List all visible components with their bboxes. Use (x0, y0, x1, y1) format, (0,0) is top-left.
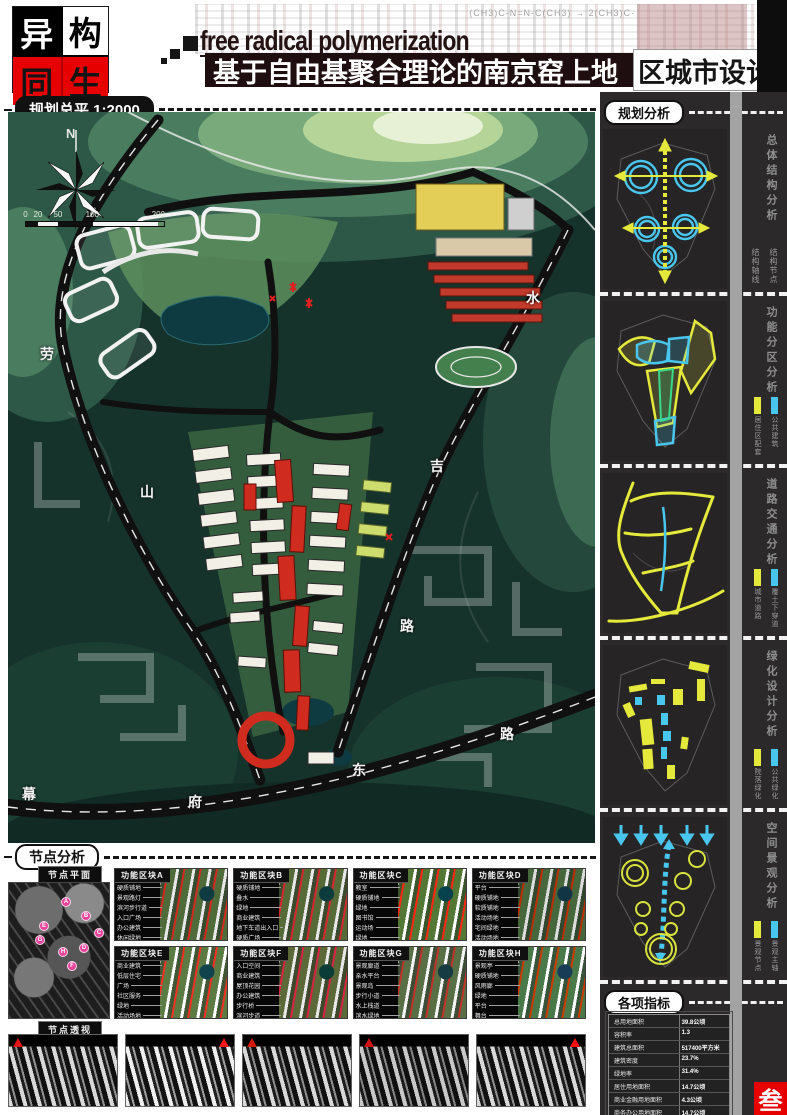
legend-label: 景观节点 (752, 940, 762, 972)
node-plan-map: ABCDEFGH (8, 882, 110, 1019)
indicator-value: 14.7公顷 (679, 1106, 729, 1115)
indicator-value: 23.7% (679, 1054, 729, 1066)
section-legend: 景观节点 景观主轴 (752, 921, 779, 972)
block-thumb (160, 869, 227, 940)
indicator-row: 容积率 1.3 (609, 1028, 729, 1041)
indicator-row: 商务办公用地面积 14.7公顷 (609, 1106, 729, 1115)
block-item: 平台 (475, 1001, 520, 1010)
block-item: 滨水绿地 (356, 1011, 401, 1019)
block-item: 硬质铺地 (117, 883, 162, 892)
block-item: 绿地 (117, 1001, 162, 1010)
north-label: N (66, 126, 75, 141)
legend-swatch-cyan (771, 569, 778, 586)
legend-label: 公共建筑 (769, 416, 779, 448)
street-label: 山 (140, 482, 154, 502)
street-label: 路 (500, 724, 514, 744)
node-plan-tab: 节点平面 (38, 866, 102, 883)
indicator-label: 绿地率 (609, 1067, 679, 1079)
block-item: 绿地 (236, 903, 281, 912)
section-legend: 居住区配套 公共建筑 (752, 397, 779, 456)
analysis-section-landscape: 空间景观分析 景观节点 景观主轴 (600, 812, 787, 984)
block-item: 图书馆 (356, 913, 401, 922)
faded-chemical-formula: (CH3)C-N=N-C(CH3) → 2(CH3)C· (469, 8, 635, 18)
block-item: 水上栈道 (356, 1001, 401, 1010)
function-block-panel: 功能区块F 入口空间商业建筑屋顶花园办公建筑步行桥滨河步道滨河广场 (233, 946, 347, 1019)
street-label: 路 (400, 616, 414, 636)
function-block-panel: 功能区块C 教室硬质铺地绿地图书馆运动场绿地 (353, 868, 467, 941)
block-item: 景观岛 (356, 981, 401, 990)
perspective-image (359, 1034, 469, 1107)
section-label: 绿化设计分析 (763, 650, 779, 740)
node-marker: A (61, 897, 71, 907)
legend-label: 居住区配套 (752, 416, 762, 456)
indicator-value: 1.3 (679, 1028, 729, 1040)
indicator-row: 总用地面积 39.8公顷 (609, 1015, 729, 1028)
scale-tick: 20 (33, 210, 42, 219)
block-item: 广场 (117, 981, 162, 990)
block-item: 教室 (356, 883, 401, 892)
section-legend: 城市道路 覆土下穿道 (752, 569, 779, 628)
function-block-panel: 功能区块D 平台硬质铺地软质铺地活动场地宅间绿地活动场地住宅 (472, 868, 586, 941)
legend-swatch-yellow (754, 921, 761, 938)
legend-label: 结构节点 (768, 248, 779, 284)
block-item: 屋顶花园 (236, 981, 281, 990)
block-thumb (160, 947, 227, 1018)
function-block-panel: 功能区块H 景观亭硬质铺地风雨廊绿地平台舞台 (472, 946, 586, 1019)
block-item: 商业建筑 (236, 913, 281, 922)
block-item: 滨河步行道 (117, 903, 162, 912)
logo-cell: 构 (61, 7, 109, 57)
scale-tick: 100 (86, 210, 99, 219)
title-chinese-main: 基于自由基聚合理论的南京窑上地 (205, 51, 618, 90)
block-item: 商业建筑 (117, 961, 162, 970)
indicator-row: 绿地率 31.4% (609, 1067, 729, 1080)
node-marker: B (81, 911, 91, 921)
street-label: 府 (188, 792, 202, 812)
indicator-value: 4.3公顷 (679, 1093, 729, 1105)
street-label: 幕 (22, 784, 36, 804)
section-legend: 结构轴线 结构节点 (750, 248, 779, 284)
greening-diagram (603, 645, 727, 805)
block-item: 绿地 (475, 991, 520, 1000)
block-item: 办公建筑 (117, 923, 162, 932)
indicator-label: 总用地面积 (609, 1015, 679, 1027)
analysis-section-roads: 道路交通分析 城市道路 覆土下穿道 (600, 468, 787, 640)
legend-label: 城市道路 (752, 588, 762, 620)
landscape-diagram (603, 817, 727, 977)
block-title: 功能区块D (473, 869, 528, 883)
function-block-panel: 功能区块B 硬质铺地叠水绿地商业建筑地下车道出入口硬质广场 (233, 868, 347, 941)
block-item: 步行桥 (236, 1001, 281, 1010)
section-legend: 院落绿化 公共绿化 (752, 749, 779, 800)
vertical-gray-stripe (730, 92, 742, 1115)
scale-tick: 50 (53, 210, 62, 219)
block-item: 软质铺地 (475, 903, 520, 912)
block-item: 绿地 (356, 903, 401, 912)
street-label: 劳 (40, 344, 54, 364)
block-item: 平台 (475, 883, 520, 892)
block-title: 功能区块C (354, 869, 409, 883)
legend-swatch-cyan (771, 749, 778, 766)
scale-bar: 02050100200 (25, 210, 175, 232)
node-marker: G (35, 935, 45, 945)
function-block-panel: 功能区块A 硬质铺地景观路灯滨河步行道入口广场办公建筑休闲绿地屋顶花园 (114, 868, 228, 941)
block-item: 风雨廊 (475, 981, 520, 990)
street-label: 吉 (430, 456, 444, 476)
node-marker: E (39, 921, 49, 931)
indicators-table: 总用地面积 39.8公顷 容积率 1.3 建筑总面积 517400平方米 建筑密… (608, 1014, 730, 1115)
section-label: 空间景观分析 (763, 822, 779, 912)
block-title: 功能区块B (234, 869, 289, 883)
node-marker: H (58, 947, 68, 957)
block-item: 运动场 (356, 923, 401, 932)
block-title: 功能区块A (115, 869, 170, 883)
block-item: 滨河步道 (236, 1011, 281, 1019)
block-item: 绿地 (356, 933, 401, 941)
block-thumb (518, 869, 585, 940)
indicator-label: 建筑密度 (609, 1054, 679, 1066)
indicator-value: 31.4% (679, 1067, 729, 1079)
block-item: 叠水 (236, 893, 281, 902)
legend-swatch-yellow (754, 397, 761, 414)
block-item: 活动场地 (475, 913, 520, 922)
indicator-row: 建筑总面积 517400平方米 (609, 1041, 729, 1054)
function-blocks-grid: 功能区块A 硬质铺地景观路灯滨河步行道入口广场办公建筑休闲绿地屋顶花园 功能区块… (114, 868, 586, 1019)
indicators-header-row: 各项指标 (604, 990, 783, 1015)
scale-tick: 200 (152, 210, 165, 219)
scale-tick: 0 (23, 210, 27, 219)
block-item: 商业建筑 (236, 971, 281, 980)
block-item: 入口广场 (117, 913, 162, 922)
indicators-header: 各项指标 (604, 990, 684, 1015)
node-marker: D (79, 943, 89, 953)
perspective-image (242, 1034, 352, 1107)
legend-swatch-yellow (754, 749, 761, 766)
block-item: 硬质铺地 (236, 883, 281, 892)
block-title: 功能区块H (473, 947, 528, 961)
block-item: 步行小道 (356, 991, 401, 1000)
indicator-label: 容积率 (609, 1028, 679, 1040)
block-item: 地下车道出入口 (236, 923, 281, 932)
analysis-header: 规划分析 (604, 100, 684, 125)
master-plan-map: N 02050100200 劳山水吉路东路幕府 (8, 112, 595, 843)
block-item: 硬质铺地 (475, 893, 520, 902)
indicator-label: 商务办公用地面积 (609, 1106, 679, 1115)
function-block-panel: 功能区块G 景观廊道亲水平台景观岛步行小道水上栈道滨水绿地公共建筑 (353, 946, 467, 1019)
block-item: 舞台 (475, 1011, 520, 1019)
collage-red-block (637, 4, 747, 54)
roads-diagram (603, 473, 727, 633)
block-item: 硬质广场 (236, 933, 281, 941)
section-label: 功能分区分析 (763, 306, 779, 396)
legend-swatch-cyan (771, 921, 778, 938)
block-item: 景观亭 (475, 961, 520, 970)
block-item: 休闲绿地 (117, 933, 162, 941)
block-item: 低层住宅 (117, 971, 162, 980)
section-label: 总体结构分析 (763, 134, 779, 224)
analysis-section-greening: 绿化设计分析 院落绿化 公共绿化 (600, 640, 787, 812)
function-block-panel: 功能区块E 商业建筑低层住宅广场社区服务绿地活动场地 (114, 946, 228, 1019)
legend-label: 公共绿化 (769, 768, 779, 800)
analysis-sidebar: 规划分析 (600, 92, 787, 1115)
block-item: 社区服务 (117, 991, 162, 1000)
block-thumb (279, 947, 346, 1018)
block-title: 功能区块F (234, 947, 288, 961)
perspective-image (476, 1034, 586, 1107)
legend-label: 覆土下穿道 (769, 588, 779, 628)
perspective-image (125, 1034, 235, 1107)
indicator-row: 居住用地面积 14.7公顷 (609, 1080, 729, 1093)
block-title: 功能区块G (354, 947, 409, 961)
analysis-section-structure: 总体结构分析 结构轴线 结构节点 (600, 124, 787, 296)
legend-swatch-yellow (754, 569, 761, 586)
indicator-value: 517400平方米 (679, 1041, 729, 1053)
block-item: 景观路灯 (117, 893, 162, 902)
block-item: 宅间绿地 (475, 923, 520, 932)
page-number: 叁 (754, 1082, 787, 1115)
perspective-image (8, 1034, 118, 1107)
legend-swatch-cyan (771, 397, 778, 414)
analysis-header-row: 规划分析 (604, 100, 783, 125)
indicator-label: 居住用地面积 (609, 1080, 679, 1092)
section-label: 道路交通分析 (763, 478, 779, 568)
block-item: 活动场地 (475, 933, 520, 941)
block-item: 景观廊道 (356, 961, 401, 970)
presentation-board: 异 构 同 生 (CH3)C-N=N-C(CH3) → 2(CH3)C· fre… (0, 0, 787, 1115)
block-title: 功能区块E (115, 947, 169, 961)
block-item: 硬质铺地 (475, 971, 520, 980)
logo: 异 构 同 生 (12, 6, 109, 93)
indicator-row: 商业金融用地面积 4.3公顷 (609, 1093, 729, 1106)
indicator-value: 14.7公顷 (679, 1080, 729, 1092)
block-item: 硬质铺地 (356, 893, 401, 902)
function-diagram (603, 301, 727, 461)
block-thumb (279, 869, 346, 940)
block-thumb (518, 947, 585, 1018)
title-bar: 基于自由基聚合理论的南京窑上地 区城市设计 (205, 53, 771, 87)
legend-label: 结构轴线 (750, 248, 761, 284)
perspective-strip (8, 1034, 586, 1107)
street-label: 水 (526, 288, 540, 308)
analysis-section-function: 功能分区分析 居住区配套 公共建筑 (600, 296, 787, 468)
indicator-value: 39.8公顷 (679, 1015, 729, 1027)
block-thumb (398, 869, 465, 940)
street-label: 东 (352, 760, 366, 780)
indicator-label: 商业金融用地面积 (609, 1093, 679, 1105)
corner-black-block (757, 0, 787, 92)
indicator-label: 建筑总面积 (609, 1041, 679, 1053)
block-item: 办公建筑 (236, 991, 281, 1000)
logo-cell: 异 (13, 7, 61, 57)
structure-diagram (603, 129, 727, 289)
legend-label: 院落绿化 (752, 768, 762, 800)
indicator-row: 建筑密度 23.7% (609, 1054, 729, 1067)
block-item: 亲水平台 (356, 971, 401, 980)
block-item: 活动场地 (117, 1011, 162, 1019)
legend-label: 景观主轴 (769, 940, 779, 972)
node-marker: C (94, 928, 104, 938)
node-marker: F (67, 961, 77, 971)
block-item: 入口空间 (236, 961, 281, 970)
